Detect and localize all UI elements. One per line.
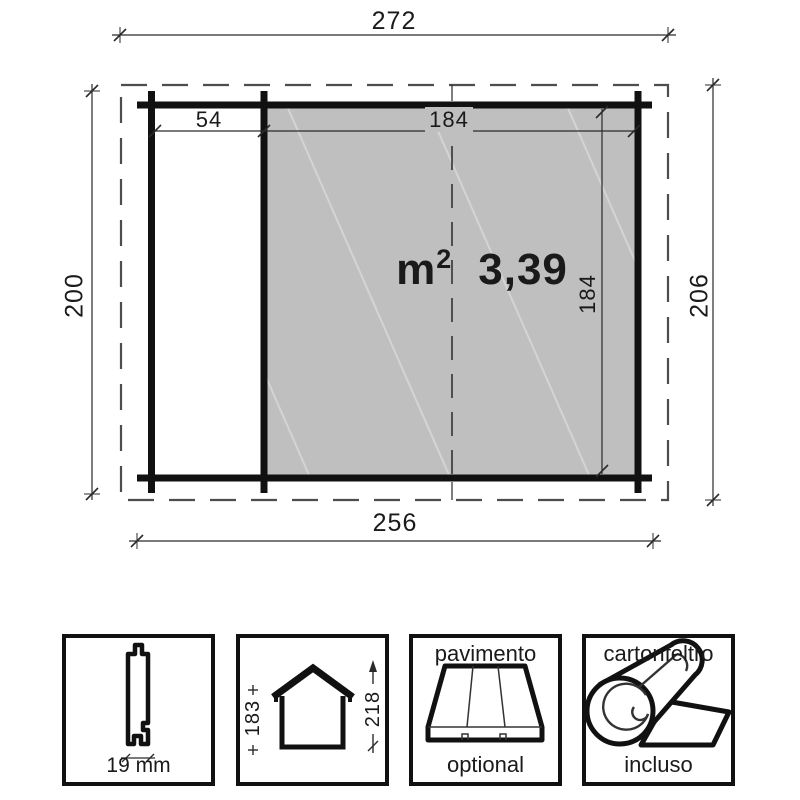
dim-left-depth-label: 200 [61,246,90,346]
shed-plan-sheet: 272 256 200 206 54 184 184 m23,39 19 mm [0,0,800,800]
house-dim-ticks [248,665,378,755]
house-ridge-height-label: 218 [362,664,384,754]
area-exponent: 2 [436,244,452,274]
dim-side-width-label: 54 [159,107,259,133]
feature-box-felt: cartonfeltro incluso [582,634,735,786]
dim-overall-width-label: 272 [120,7,668,36]
feature-box-house: 183 218 [236,634,389,786]
house-wall-height-label: 183 [242,673,264,763]
floor-status-label: optional [413,752,558,778]
area-label: m23,39 [327,245,637,295]
area-value: 3,39 [478,245,568,294]
dim-room-width-label: 184 [399,107,499,133]
floor-title-label: pavimento [413,641,558,667]
felt-title-label: cartonfeltro [586,641,731,667]
feature-box-plank: 19 mm [62,634,215,786]
dim-right-depth-label: 206 [686,246,715,346]
feature-box-floor: pavimento optional [409,634,562,786]
plank-width-label: 19 mm [66,754,211,778]
dim-base-width-label: 256 [129,509,661,538]
felt-status-label: incluso [586,752,731,778]
